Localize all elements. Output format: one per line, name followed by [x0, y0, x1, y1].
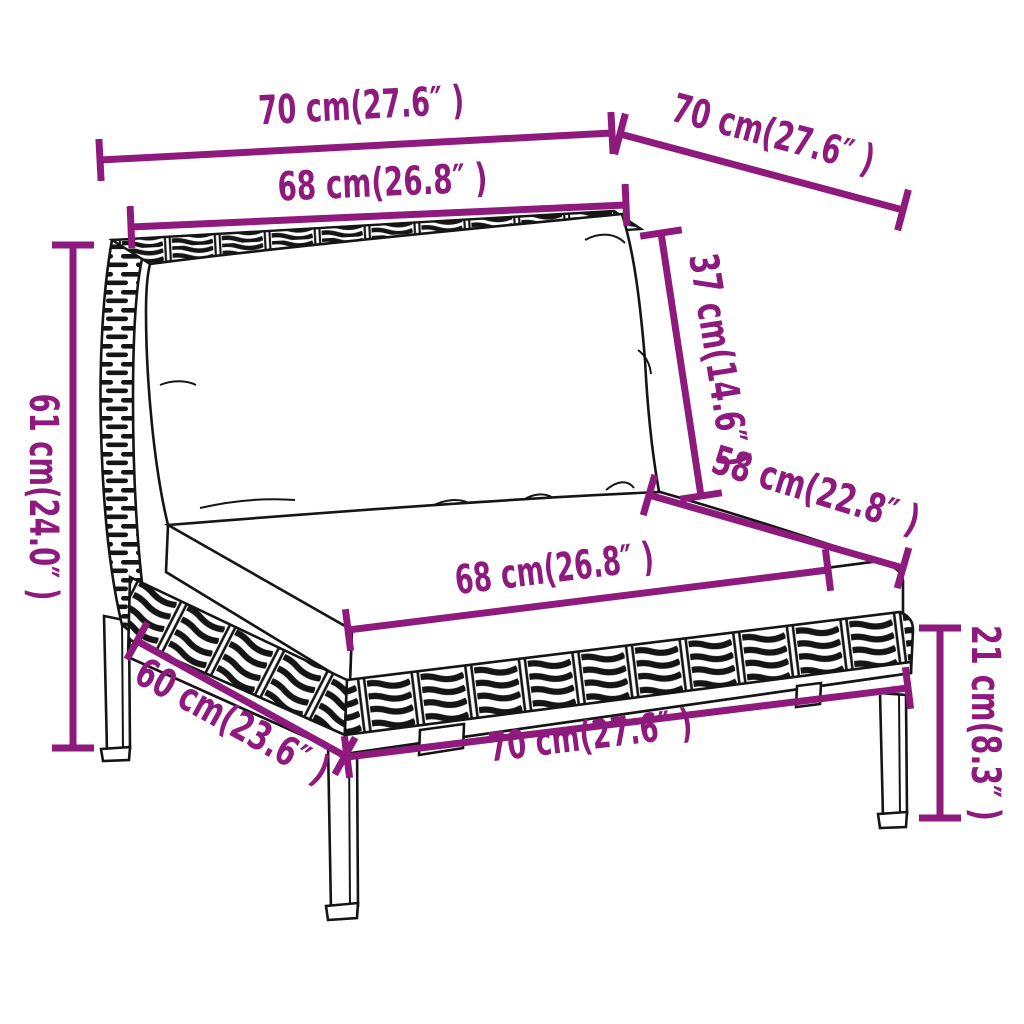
back-left-leg [101, 616, 130, 761]
dimension-top-depth: 70 cm(27.6″ ) [615, 85, 909, 230]
dimension-overall-height-label: 61 cm(24.0″ ) [20, 394, 66, 601]
diagram-canvas: 70 cm(27.6″ ) 70 cm(27.6″ ) 68 cm(26.8″ … [0, 0, 1024, 1024]
dimension-leg-height-label: 21 cm(8.3″ ) [962, 625, 1008, 821]
front-right-leg [878, 693, 907, 828]
dimension-top-width-label: 70 cm(27.6″ ) [257, 78, 465, 135]
dimension-leg-height: 21 cm(8.3″ ) [919, 625, 1008, 821]
back-cushion [146, 214, 660, 526]
dimension-back-cushion-width-label: 68 cm(26.8″ ) [277, 155, 489, 210]
dimension-overall-height: 61 cm(24.0″ ) [20, 245, 94, 748]
dimension-top-depth-label: 70 cm(27.6″ ) [667, 85, 880, 183]
dimension-diagram: 70 cm(27.6″ ) 70 cm(27.6″ ) 68 cm(26.8″ … [0, 0, 1024, 1024]
